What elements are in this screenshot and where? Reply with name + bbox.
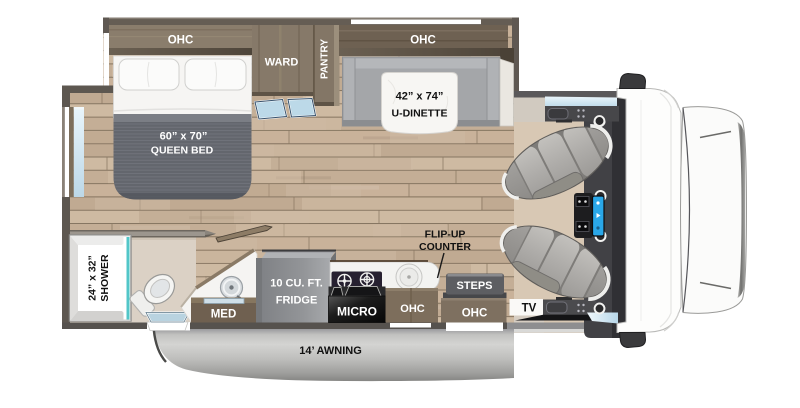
svg-text:FRIDGE: FRIDGE <box>276 295 318 307</box>
svg-text:SHOWER: SHOWER <box>99 254 111 302</box>
svg-text:OHC: OHC <box>400 303 425 315</box>
svg-text:PANTRY: PANTRY <box>320 39 331 79</box>
svg-text:MED: MED <box>211 309 237 321</box>
svg-text:10 CU. FT.: 10 CU. FT. <box>270 278 323 290</box>
svg-text:WARD: WARD <box>265 57 299 69</box>
svg-text:FLIP-UP: FLIP-UP <box>425 229 466 241</box>
svg-text:STEPS: STEPS <box>456 280 492 292</box>
svg-text:U-DINETTE: U-DINETTE <box>392 108 448 120</box>
svg-text:QUEEN BED: QUEEN BED <box>151 145 214 157</box>
svg-text:OHC: OHC <box>462 308 488 320</box>
svg-text:TV: TV <box>522 303 537 315</box>
svg-text:COUNTER: COUNTER <box>419 241 471 253</box>
svg-text:MICRO: MICRO <box>337 305 377 319</box>
svg-text:60” x 70”: 60” x 70” <box>160 131 208 143</box>
svg-text:42” x 74”: 42” x 74” <box>396 91 444 103</box>
svg-text:OHC: OHC <box>410 35 436 47</box>
svg-text:24” x 32”: 24” x 32” <box>87 255 99 301</box>
svg-text:14’ AWNING: 14’ AWNING <box>299 345 362 357</box>
svg-text:OHC: OHC <box>168 35 194 47</box>
